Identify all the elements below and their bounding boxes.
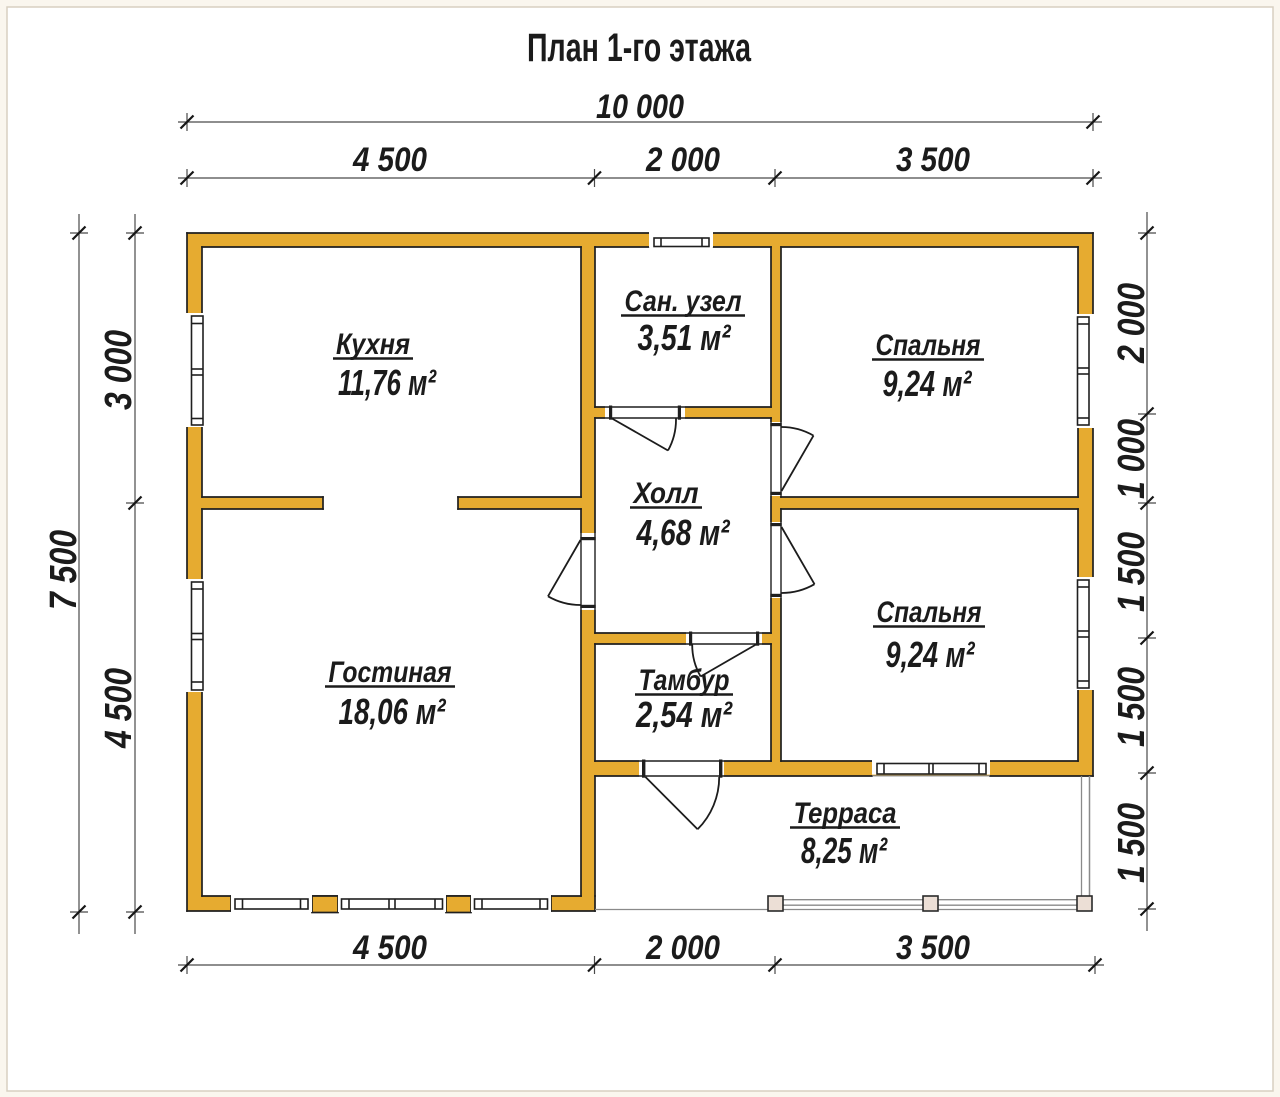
svg-text:4 500: 4 500 (352, 141, 427, 179)
svg-text:11,76 м²: 11,76 м² (338, 362, 437, 403)
svg-text:3 500: 3 500 (896, 929, 970, 967)
svg-text:3,51 м²: 3,51 м² (638, 317, 732, 358)
svg-text:4 500: 4 500 (352, 929, 427, 967)
svg-text:3 000: 3 000 (98, 330, 140, 410)
svg-text:Тамбур: Тамбур (639, 664, 730, 697)
svg-text:2 000: 2 000 (1111, 283, 1153, 364)
svg-text:Сан. узел: Сан. узел (625, 285, 742, 318)
svg-text:8,25 м²: 8,25 м² (801, 830, 888, 871)
svg-text:Холл: Холл (632, 477, 699, 510)
svg-text:4 500: 4 500 (98, 668, 140, 749)
svg-text:4,68 м²: 4,68 м² (636, 512, 731, 553)
svg-text:Спальня: Спальня (877, 596, 982, 629)
svg-text:Терраса: Терраса (794, 797, 897, 830)
svg-text:Гостиная: Гостиная (329, 656, 452, 689)
svg-text:2 000: 2 000 (645, 141, 720, 179)
svg-text:10 000: 10 000 (596, 88, 684, 126)
svg-text:Кухня: Кухня (336, 328, 410, 361)
svg-text:9,24 м²: 9,24 м² (886, 634, 976, 675)
svg-text:1 500: 1 500 (1111, 667, 1153, 747)
svg-text:1 500: 1 500 (1111, 532, 1153, 612)
svg-text:7 500: 7 500 (43, 530, 85, 610)
svg-text:2,54 м²: 2,54 м² (635, 694, 733, 735)
svg-text:9,24 м²: 9,24 м² (883, 363, 973, 404)
svg-text:План 1-го этажа: План 1-го этажа (527, 26, 752, 70)
svg-text:2 000: 2 000 (645, 929, 720, 967)
svg-text:3 500: 3 500 (896, 141, 970, 179)
svg-text:1 000: 1 000 (1111, 419, 1153, 499)
svg-text:18,06 м²: 18,06 м² (339, 691, 447, 732)
svg-text:Спальня: Спальня (876, 329, 981, 362)
svg-text:1 500: 1 500 (1111, 803, 1153, 883)
